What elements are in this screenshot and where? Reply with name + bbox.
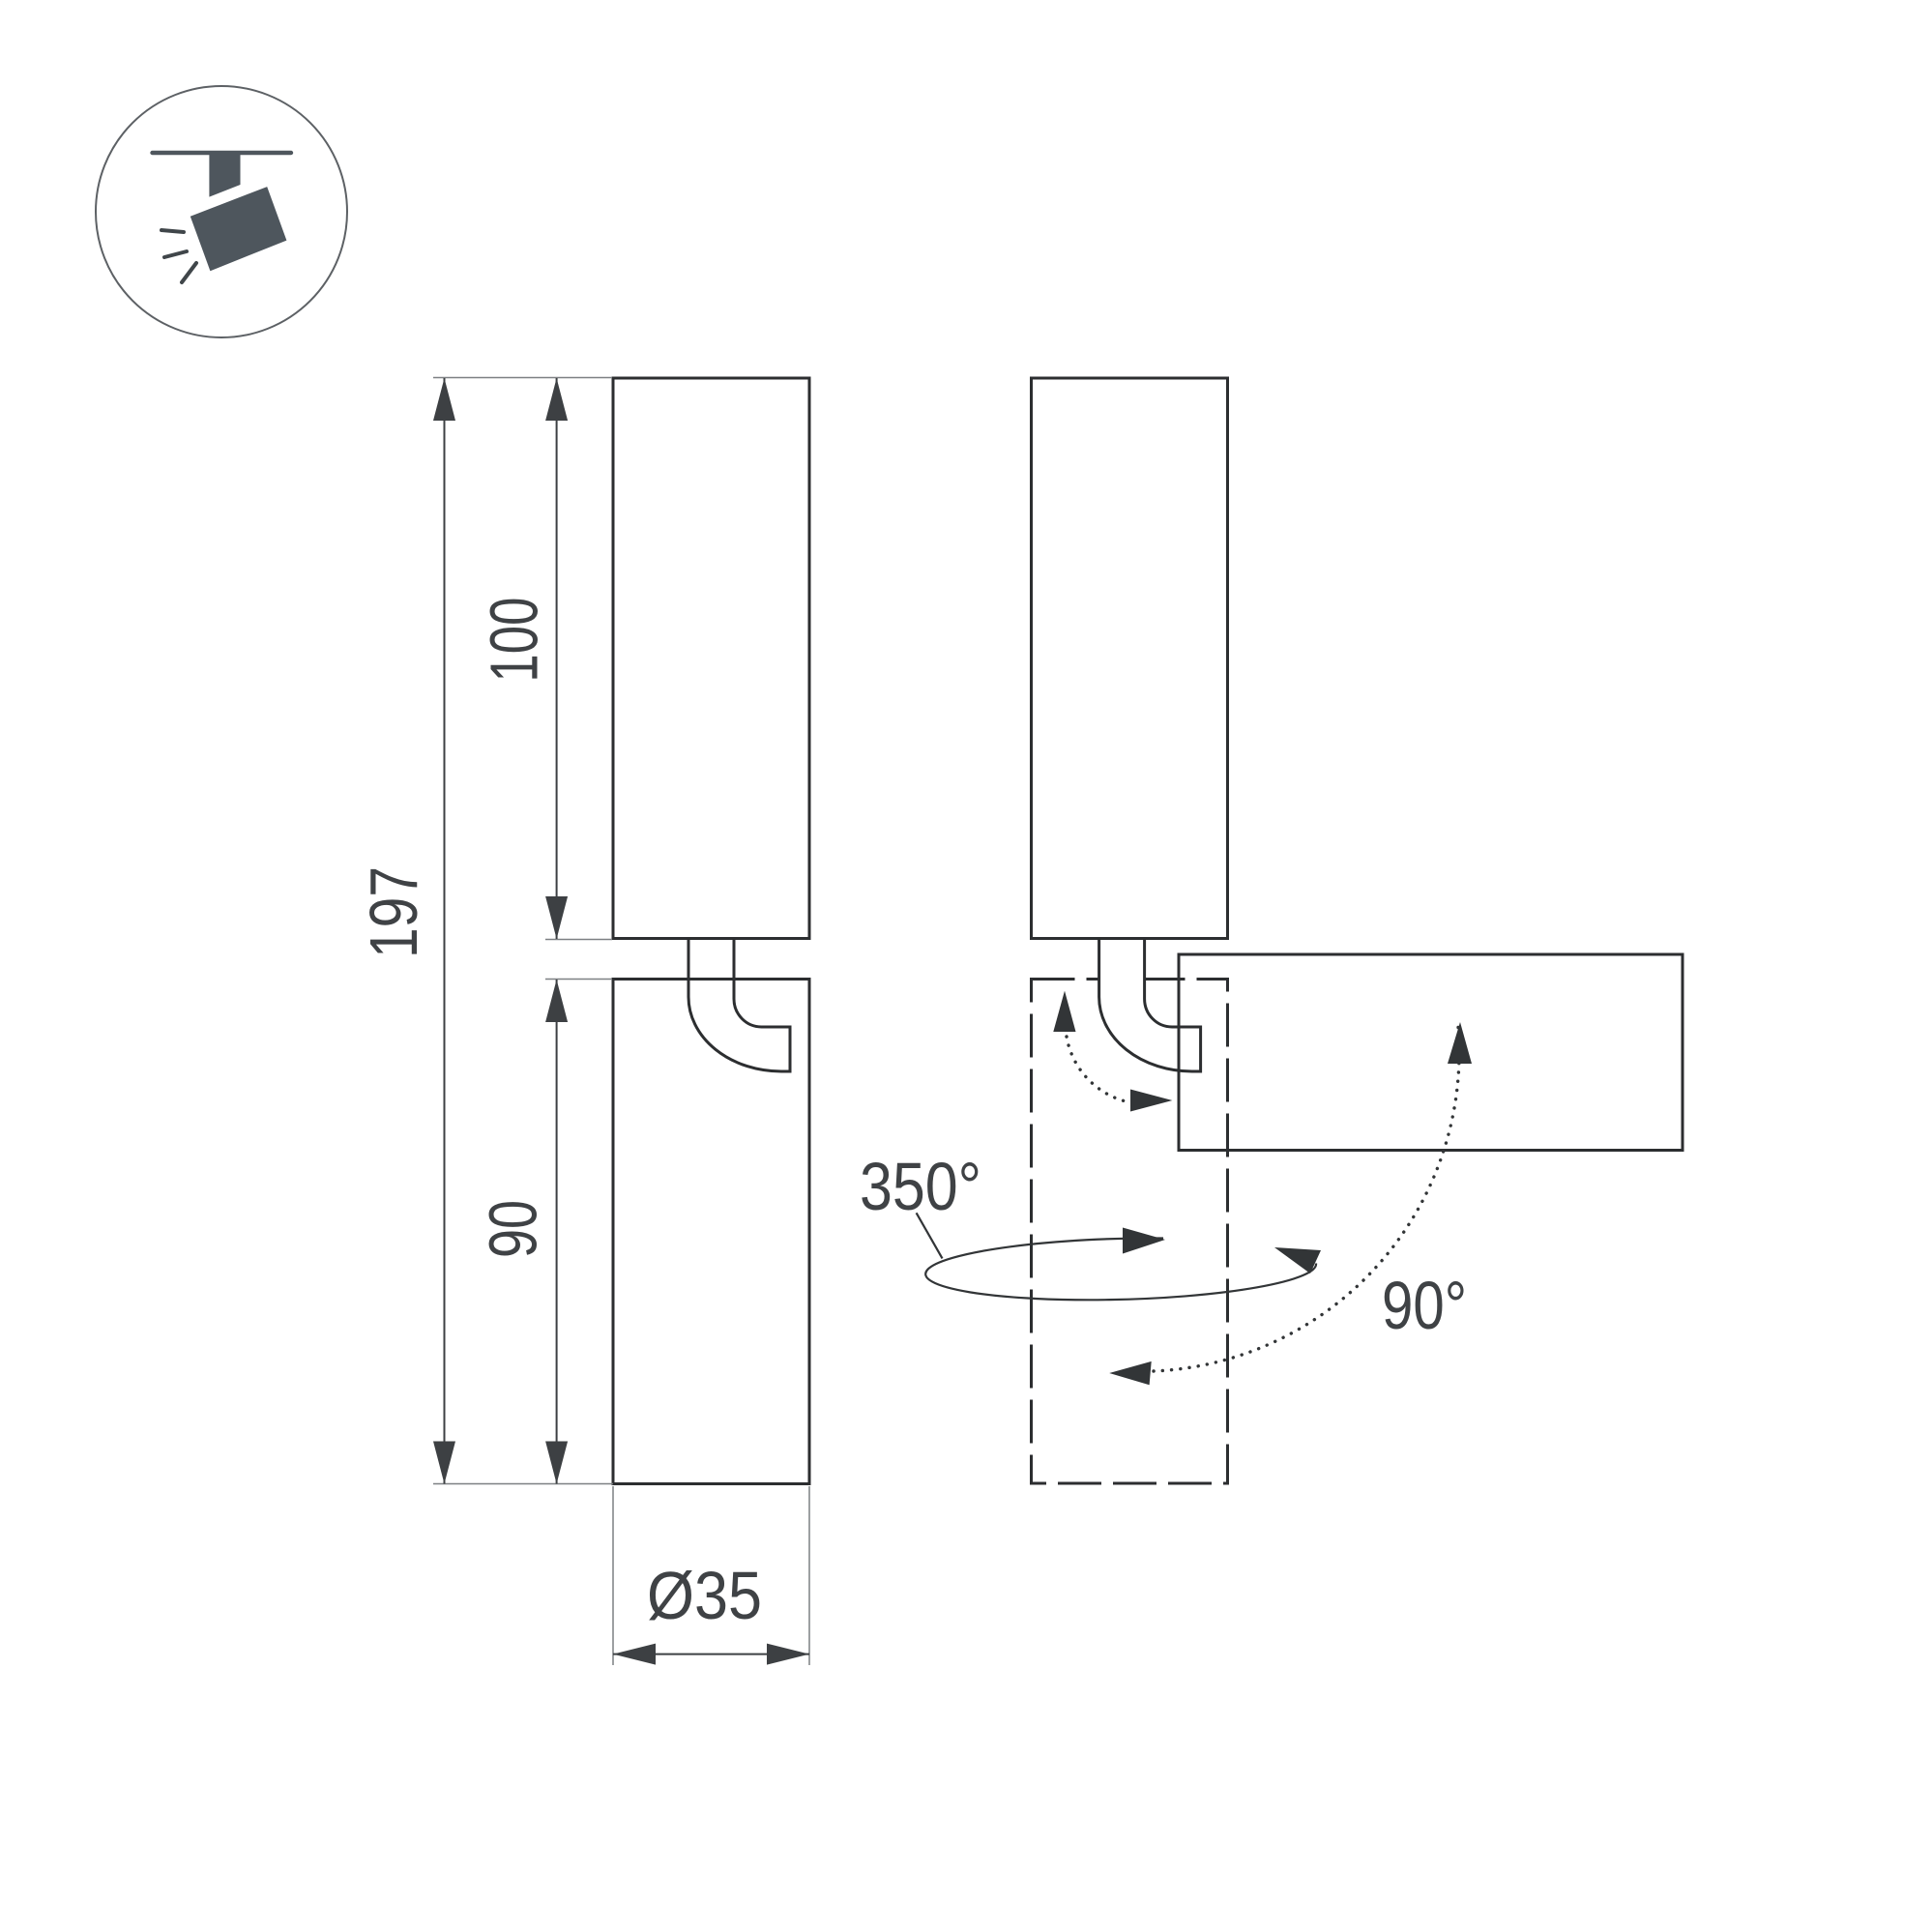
svg-text:90: 90: [476, 1200, 551, 1258]
svg-text:100: 100: [477, 598, 552, 683]
svg-text:Ø35: Ø35: [647, 1558, 762, 1633]
svg-text:197: 197: [356, 866, 431, 958]
svg-text:90°: 90°: [1382, 1268, 1467, 1343]
svg-text:350°: 350°: [860, 1149, 981, 1224]
